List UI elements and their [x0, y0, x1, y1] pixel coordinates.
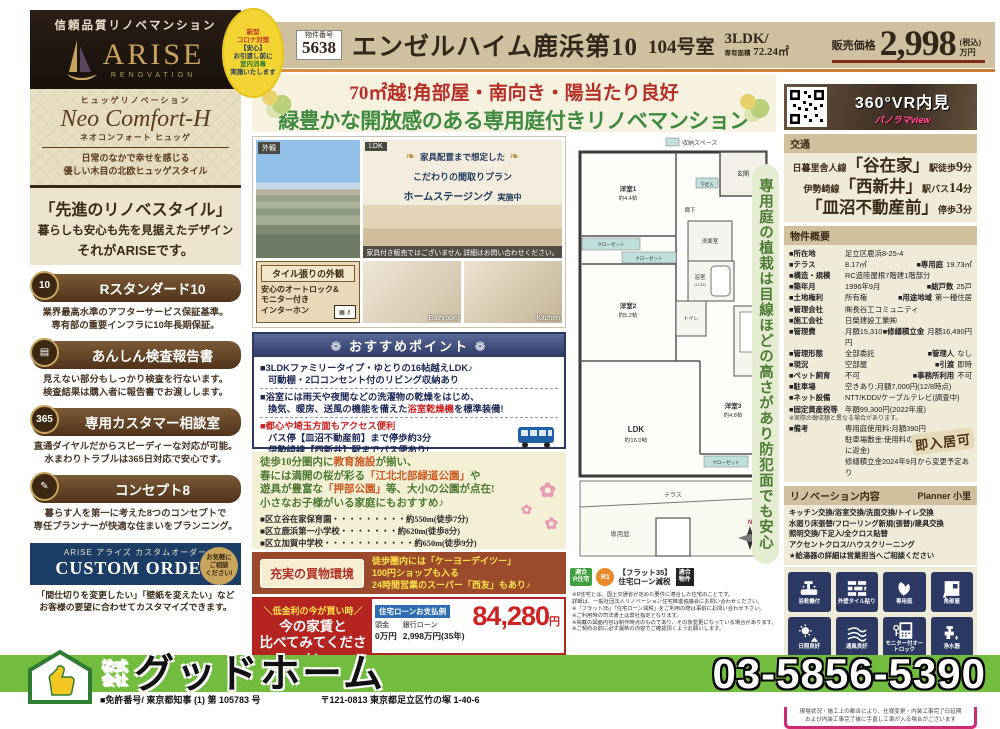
arise-sail-logo-icon: [67, 38, 97, 80]
outline-row: ■駐車場空きあり:月額7,000円(12/8時点): [789, 381, 972, 392]
staging-line: 家具配置まで想定した: [420, 152, 505, 162]
recommend-head: ■浴室には雨天や夜間などの洗濯物の乾燥をはじめ、: [260, 392, 479, 402]
outline-row: ■築年月1996年9月■総戸数25戸: [789, 281, 972, 292]
construction-note: および内装工事完了後に手直し工事が入る場合がございます: [789, 717, 972, 724]
series-name: Neo Comfort-H: [34, 106, 237, 132]
shopping-label: 充実の買物環境: [260, 559, 364, 588]
series-desc2: 優しい木目の北欧ヒュッゲスタイル: [63, 166, 207, 176]
intercom-icon: ▦ ⚷: [334, 305, 356, 319]
company-footer-band: 株式会社 グッドホーム 03-5856-5390: [0, 655, 1000, 692]
corner-room-tile: 角部屋: [931, 572, 974, 612]
bathroom-photo-label: Bathroom: [429, 315, 459, 322]
consultation-badge-line: お気軽に: [206, 554, 231, 562]
floor-plan: 収納スペース クローゼット クローゼット 洋室1 約4.4帖 洋室2 約5.2帖…: [570, 136, 778, 564]
monthly-payment-value: 84,280: [472, 601, 549, 631]
property-info-column: 360°VR内見 パノラマview 交通 日暮里舎人線「谷在家」駅徒歩9分 伊勢…: [784, 84, 977, 729]
recommend-points-box: ❁ おすすめポイント ❁ ■3LDKファミリータイプ・ゆとりの16帖越えLDK♪…: [252, 332, 566, 449]
style-tagline-panel: 「先進のリノベスタイル」 暮らしも安心も先を見据えたデザイン それがARISEで…: [30, 188, 241, 265]
outline-row: ■所在地足立区鹿浜8-25-4: [789, 248, 972, 259]
feature-desc: 直通ダイヤルだからスピーディーな対応が可能。: [34, 441, 238, 451]
series-desc1: 日常のなかで幸せを感じる: [81, 153, 189, 163]
feature-desc: 検査結果は購入者に報告書でお渡しします。: [43, 387, 228, 397]
sakura-icon: ✿: [539, 478, 556, 503]
disclaimer-line: 詳細は、一般社団法人リノベーション住宅推進協議会にお問い合わせください。: [572, 599, 778, 606]
recommend-item-1: ■3LDKファミリータイプ・ゆとりの16帖越えLDK♪ 可動棚・2口コンセント付…: [260, 360, 558, 389]
area-value: 72.24㎡: [753, 46, 789, 58]
closet-label: クローゼット: [712, 459, 740, 466]
monthly-payment: 84,280円: [472, 601, 560, 632]
plan-legend-label: 収納スペース: [682, 139, 717, 147]
renovation-item: 照明交換/下足入/全クロス貼替: [789, 529, 972, 540]
shopping-text: 徒歩圏内には「ケーヨーデイツー」: [372, 555, 530, 567]
r-jutaku-badge: 適合R住宅: [570, 568, 592, 586]
recommend-head-accent: ■都心や埼玉方面もアクセス便利: [260, 421, 395, 431]
closet-label: クローゼット: [635, 255, 663, 262]
env-text: 小さなお子様がいる家庭にもおすすめ♪: [260, 497, 558, 511]
feature-title: コンセプト8: [32, 475, 241, 503]
shopping-text: 24時間営業のスーパー「西友」もあり♪: [372, 579, 530, 591]
feature-desc: 見えない部分もしっかり検査を行ないます。: [43, 374, 228, 384]
faucet-icon: [941, 624, 963, 643]
access-line-1: 日暮里舎人線「谷在家」駅徒歩9分: [789, 156, 972, 177]
consultation-badge-line: ください!: [205, 570, 232, 578]
disclaimer-line: ※R住宅とは、国土交通省が定めた要件に適合した住宅のことです。: [572, 592, 778, 599]
room2-label: 洋室2: [620, 301, 637, 310]
photo-collage: 外観 LDK ❧ 家具配置まで想定した ❧ こだわりの間取りプラン ホームステー…: [252, 136, 566, 328]
autolock-note: インターホン: [261, 306, 309, 315]
facility-distance: ■区立加賀中学校・・・・・・・・・・・約650m(徒歩9分): [260, 538, 558, 549]
feature-desc: 専任プランナーが快適な住まいをプランニング。: [34, 521, 238, 531]
env-accent: 「押部公園」: [323, 484, 386, 495]
arise-brand-panel: 信頼品質リノベマンション ARISE RENOVATION: [30, 10, 241, 89]
brick-wall-icon: [846, 579, 868, 598]
tekigo-badge: 適合物件: [676, 568, 694, 586]
private-garden-label: 専用庭: [610, 529, 630, 538]
property-number-box: 物件番号 5638: [296, 30, 342, 60]
concept-pen-icon: ✎: [30, 472, 59, 501]
feature-desc: 業界最高水準のアフターサービス保証基準。: [43, 307, 229, 317]
bath-dryer-tile: 浴乾機付: [788, 572, 831, 612]
facility-distance: ■区立谷在家保育園・・・・・・・・・約550m(徒歩7分): [260, 514, 558, 526]
recommend-body: を標準装備!: [454, 404, 504, 414]
qr-code-icon: [787, 87, 827, 127]
header-divider: [252, 69, 995, 72]
sun-icon: [798, 624, 820, 643]
price-value: 2,998: [880, 27, 956, 59]
home-staging-note: ❧ 家具配置まで想定した ❧ こだわりの間取りプラン ホームステージング 実施中: [363, 146, 562, 206]
recommend-body: 可動棚・2口コンセント付のリビング収納あり: [260, 375, 459, 385]
disclaimer-line: ※ご利用時の司法書士は弊社指定となります。: [572, 613, 778, 620]
bath-dryer-icon: [798, 579, 820, 598]
planner-name: Planner 小里: [917, 489, 971, 502]
outline-row: ■固定資産税等年額99,300円(2022年度): [789, 404, 972, 415]
loan-catch-panel: ＼低金利の今が買い時／ 今の家賃と比べてみてください: [254, 599, 372, 653]
wind-icon: [846, 624, 868, 643]
renovation-item: キッチン交換/浴室交換/洗面交換/トイレ交換: [789, 508, 972, 519]
feature-inspection-report: ▤ あんしん検査報告書 見えない部分もしっかり検査を行ないます。検査結果は購入者…: [30, 341, 241, 399]
garden-privacy-note: 専用庭の植栽は目線ほどの高さがあり防犯面でも安心: [752, 164, 779, 564]
outline-row: ■施工会社日榮建設工業㈱: [789, 315, 972, 326]
room1-size: 約4.4帖: [619, 194, 638, 202]
brand-subname: RENOVATION: [103, 72, 205, 79]
access-line-2: 伊勢崎線「西新井」駅バス14分: [789, 177, 972, 198]
tagline-1: 「先進のリノベスタイル」: [32, 196, 239, 220]
toilet-label: トイレ: [683, 316, 698, 322]
loan-bankloan-label: 銀行ローン: [403, 622, 438, 629]
brand-name: ARISE: [103, 40, 205, 70]
monitor-autolock-icon: [893, 621, 915, 640]
feature-desc: 水まわりトラブルは365日対応で安心です。: [45, 454, 227, 464]
loan-downpayment-label: 頭金: [375, 622, 389, 629]
disclaimer-line: ※ご契約の前に必ず最新の内容でご確認頂くようお願いします。: [572, 626, 778, 633]
outline-row: ■構造・規模RC造陸屋根7階建1階部分: [789, 270, 972, 281]
report-book-icon: ▤: [30, 338, 59, 367]
corner-room-icon: [941, 579, 963, 598]
series-ruby: ヒュッゲリノベーション: [34, 95, 237, 106]
tagline-2: 暮らしも安心も先を見据えたデザイン: [32, 222, 239, 238]
loan-detail-panel: 住宅ローンお支払例 頭金0万円 銀行ローン2,998万円(35年) 84,280…: [372, 599, 564, 653]
construction-note: 現場状況・施工上の都合により、仕様変更・内装工事完了日延期: [789, 709, 972, 716]
outline-row: ■管理費月額15,310円■修繕積立金月額16,490円: [789, 326, 972, 348]
support-365-icon: 365: [30, 405, 59, 434]
covid-line: 実施いたします: [230, 69, 276, 77]
tile-exterior-note: タイル張りの外観: [261, 265, 355, 282]
facility-distance: ■区立鹿浜第一小学校・・・・・・・約620m(徒歩8分): [260, 526, 558, 538]
recommend-item-2: ■浴室には雨天や夜間などの洗濯物の乾燥をはじめ、 換気、暖房、送風の機能を備えた…: [260, 389, 558, 418]
tax-note: ※実際の徴収額と異なる場合があります。: [789, 415, 972, 423]
private-garden-tile: 専用庭: [883, 572, 926, 612]
license-strip: ■免許番号/ 東京都知事 (1) 第 105783 号 〒121-0813 東京…: [0, 692, 1000, 707]
ldk-photo: LDK ❧ 家具配置まで想定した ❧ こだわりの間取りプラン ホームステージング…: [363, 140, 562, 258]
env-text: が揃い、: [376, 457, 418, 468]
vr-tour-banner: 360°VR内見 パノラマview: [784, 84, 977, 130]
layout-type: 3LDK/: [725, 32, 790, 47]
r1-badge-icon: R1: [596, 568, 614, 586]
custom-order-desc: 「間仕切りを変更したい」「壁紙を変えたい」など: [37, 590, 235, 600]
outline-row: ■テラス8.17㎡■専用庭19.73㎡: [789, 259, 972, 270]
outline-row: ■現況空部屋■引渡即時: [789, 359, 972, 370]
env-accent: 教育施設: [334, 457, 376, 468]
loan-catch: 今の家賃と: [279, 619, 347, 634]
covid-line: 新型: [247, 29, 260, 37]
outline-row: ■管理会社㈱長谷工コミュニティ: [789, 304, 972, 315]
room3-size: 約4.8帖: [724, 411, 743, 419]
monthly-payment-unit: 円: [549, 616, 560, 628]
recommend-body: バス停【皿沼不動産前】まで停歩約3分: [260, 433, 431, 443]
flat35-badge: 【フラット35】住宅ローン減税: [618, 568, 671, 586]
plan-disclaimer-notes: ※R住宅とは、国土交通省が定めた要件に適合した住宅のことです。 詳細は、一般社団…: [572, 592, 778, 633]
catch-copy-banner: 70㎡越!角部屋・南向き・陽当たり良好 緑豊かな開放感のある専用庭付きリノベマン…: [252, 74, 776, 132]
recommend-title: ❁ おすすめポイント ❁: [254, 334, 564, 357]
feature-r-standard: 10 Rスタンダード10 業界最高水準のアフターサービス保証基準。専有部の重要イ…: [30, 274, 241, 332]
company-name: グッドホーム: [134, 654, 385, 694]
exterior-photo-label: 外観: [258, 142, 280, 154]
property-title: エンゼルハイム鹿浜第10: [352, 27, 638, 63]
recommend-body: 換気、暖房、送風の機能を備えた: [260, 404, 407, 414]
env-text: 春には満開の桜が彩る: [260, 471, 365, 482]
price-label: 販売価格: [832, 37, 876, 59]
company-type: 株式会社: [102, 660, 128, 687]
covid-line: コロナ対策: [237, 37, 270, 45]
bus-icon: [516, 424, 556, 450]
env-accent: 「江北北部緑道公園」: [365, 471, 470, 482]
kitchen-photo-label: Kitchen: [537, 315, 560, 322]
staging-line: こだわりの間取りプラン: [413, 172, 512, 182]
phone-number: 03-5856-5390: [712, 653, 986, 695]
r-standard-badge-icon: 10: [30, 271, 59, 300]
series-panel: ヒュッゲリノベーション Neo Comfort-H ネオコンフォート ヒュッゲ …: [30, 89, 241, 188]
ldk-size: 約16.0帖: [625, 436, 648, 444]
equipment-icon-grid: 浴乾機付 外壁タイル貼り 専用庭 角部屋 日照良好 通風良好 モニター付オートロ…: [784, 567, 977, 662]
hallway-label: 廊下: [684, 206, 696, 214]
env-text: 等、大小の公園が点在!: [386, 484, 495, 495]
price-block: 販売価格 2,998 (税込)万円: [832, 27, 985, 63]
recommend-head: ■3LDKファミリータイプ・ゆとりの16帖越えLDK♪: [260, 363, 473, 373]
room-number: 104号室: [648, 32, 715, 59]
disclaimer-line: ※「フラット35」「住宅ローン減税」をご利用の際は事前にお問い合わせ下さい。: [572, 606, 778, 613]
feature-desc: 暮らす人を第一に考えた8つのコンセプトで: [45, 508, 227, 518]
renovation-note: ★給湯器の詳細は営業担当へご相談ください: [789, 551, 972, 562]
terrace-label: テラス: [664, 492, 682, 499]
covid-measure-badge: 新型 コロナ対策 【安心】 お引渡し前に 室内消毒 実施いたします: [222, 8, 284, 98]
feature-concept8: ✎ コンセプト8 暮らす人を第一に考えた8つのコンセプトで専任プランナーが快適な…: [30, 475, 241, 533]
loan-downpayment-value: 0万円: [375, 630, 397, 642]
room2-size: 約5.2帖: [619, 311, 638, 319]
photo-caption: 家具付き販売ではございません 詳細はお問い合わせください。: [363, 246, 562, 258]
trust-tagline: 信頼品質リノベマンション: [34, 17, 237, 33]
feature-title: 専用カスタマー相談室: [32, 408, 241, 436]
brand-sidebar: 信頼品質リノベマンション ARISE RENOVATION ヒュッゲリノベーショ…: [30, 10, 241, 614]
room3-label: 洋室3: [725, 401, 742, 410]
renovation-item: アクセントクロス/ハウスクリーニング: [789, 540, 972, 551]
exterior-photo: 外観: [256, 140, 360, 258]
environment-box: 徒歩10分圏内に教育施設が揃い、 春には満開の桜が彩る「江北北部緑道公園」や 遊…: [252, 452, 566, 549]
env-text: 徒歩10分圏内に: [260, 457, 334, 468]
loan-bankloan-value: 2,998万円(35年): [403, 630, 465, 642]
outline-row: ■管理形態全部委託■管理人なし: [789, 348, 972, 359]
outline-row: ■土地権利所有権■用途地域第一種住居: [789, 292, 972, 303]
closet-label: クローゼット: [597, 241, 625, 248]
license-number: ■免許番号/ 東京都知事 (1) 第 105783 号: [100, 693, 260, 706]
renovation-section-body: キッチン交換/浴室交換/洗面交換/トイレ交換 水廻り床張替/フローリング新規(張…: [784, 505, 977, 566]
ldk-label: LDK: [628, 425, 645, 434]
catch-line-1: 70㎡越!角部屋・南向き・陽当たり良好: [252, 78, 776, 105]
company-address: 〒121-0813 東京都足立区竹の塚 1-40-6: [320, 693, 479, 706]
staging-line: 実施中: [497, 193, 521, 202]
price-unit: 万円: [960, 48, 976, 57]
outline-row: ■ペット飼育不可■事務所利用不可: [789, 370, 972, 381]
equipment-note-box: タイル張りの外観 安心のオートロック& モニター付き インターホン ▦ ⚷: [256, 261, 360, 323]
vr-title: 360°VR内見: [831, 89, 974, 113]
goodhome-logo-icon: [28, 650, 92, 704]
covid-line: 【安心】: [240, 45, 266, 53]
floral-decoration-icon: [736, 88, 770, 122]
bath-size-label: (1216): [694, 282, 706, 287]
recommend-body-accent: 浴室乾燥機: [407, 404, 454, 414]
access-section-title: 交通: [784, 134, 977, 153]
loan-table-title: 住宅ローンお支払例: [375, 605, 450, 618]
sakura-icon: ✿: [545, 514, 558, 534]
custom-order-brand: ARISE: [64, 548, 93, 557]
kitchen-photo: Kitchen: [464, 261, 562, 323]
access-line-3: 「皿沼不動産前」停歩3分: [789, 198, 972, 219]
catch-line-2: 緑豊かな開放感のある専用庭付きリノベマンション: [252, 105, 776, 132]
room1-label: 洋室1: [620, 184, 637, 193]
outline-section-title: 物件概要: [784, 226, 977, 245]
sakura-icon: ✿: [521, 502, 532, 518]
shopping-text: 100円ショップも入る: [372, 567, 530, 579]
bath-label: 浴室: [694, 273, 706, 281]
floor-plan-drawing: 収納スペース クローゼット クローゼット 洋室1 約4.4帖 洋室2 約5.2帖…: [570, 136, 778, 564]
leaf-icon: [893, 579, 915, 598]
certification-badges: 適合R住宅 R1 【フラット35】住宅ローン減税 適合物件: [570, 568, 778, 586]
feature-title: Rスタンダード10: [32, 274, 241, 302]
consultation-badge-line: ご相談: [210, 562, 229, 570]
area-label: 専有面積: [725, 50, 751, 57]
outline-row: ■ネット設備NTT/KDDI/ケーブルテレビ(調査中): [789, 392, 972, 403]
custom-order-panel: ARISE アライズ カスタムオーダー CUSTOM ORDER お気軽に ご相…: [30, 543, 241, 585]
vr-subtitle: パノラマview: [831, 113, 974, 126]
outline-row: 修繕積立金2024年9月から変更予定あり: [789, 456, 972, 478]
series-reading: ネオコンフォート ヒュッゲ: [42, 132, 229, 148]
entrance-label: 玄関: [737, 170, 749, 178]
consultation-badge: お気軽に ご相談 ください!: [200, 547, 238, 585]
covid-line: お引渡し前に: [234, 53, 273, 61]
property-header-bar: 物件番号 5638 エンゼルハイム鹿浜第10 104号室 3LDK/ 専有面積 …: [252, 22, 995, 68]
autolock-note: 安心のオートロック&: [261, 285, 339, 294]
custom-order-desc: お客様の要望に合わせてカスタマイズできます。: [39, 602, 231, 612]
shopping-environment-band: 充実の買物環境 徒歩圏内には「ケーヨーデイツー」 100円ショップも入る 24時…: [252, 552, 566, 594]
layout-area: 3LDK/ 専有面積 72.24㎡: [725, 32, 790, 58]
access-section-body: 日暮里舎人線「谷在家」駅徒歩9分 伊勢崎線「西新井」駅バス14分 「皿沼不動産前…: [784, 153, 977, 222]
renovation-section-title: リノベーション内容Planner 小里: [784, 486, 977, 505]
staging-line: ホームステージング: [404, 192, 494, 203]
loan-catch-top: ＼低金利の今が買い時／: [254, 604, 372, 617]
custom-order-ruby: アライズ カスタムオーダー: [96, 548, 207, 557]
env-text: 遊具が豊富な: [260, 484, 323, 495]
feature-title: あんしん検査報告書: [32, 341, 241, 369]
env-text: や: [470, 471, 481, 482]
washroom-label: 洗面室: [702, 237, 719, 245]
bathroom-photo: Bathroom: [363, 261, 461, 323]
feature-desc: 専有部の重要インフラに10年長期保証。: [51, 320, 219, 330]
property-number: 5638: [302, 38, 336, 57]
renovation-item: 水廻り床張替/フローリング新規(張替)/建具交換: [789, 519, 972, 530]
feature-customer-support: 365 専用カスタマー相談室 直通ダイヤルだからスピーディーな対応が可能。水まわ…: [30, 408, 241, 466]
tile-wall-tile: 外壁タイル貼り: [836, 572, 879, 612]
outline-section-body: ■所在地足立区鹿浜8-25-4 ■テラス8.17㎡■専用庭19.73㎡ ■構造・…: [784, 245, 977, 482]
tagline-3: それがARISEです。: [32, 240, 239, 259]
price-tax: (税込): [960, 38, 981, 47]
autolock-note: モニター付き: [261, 295, 309, 304]
loan-example-box: ＼低金利の今が買い時／ 今の家賃と比べてみてください 住宅ローンお支払例 頭金0…: [252, 597, 566, 655]
